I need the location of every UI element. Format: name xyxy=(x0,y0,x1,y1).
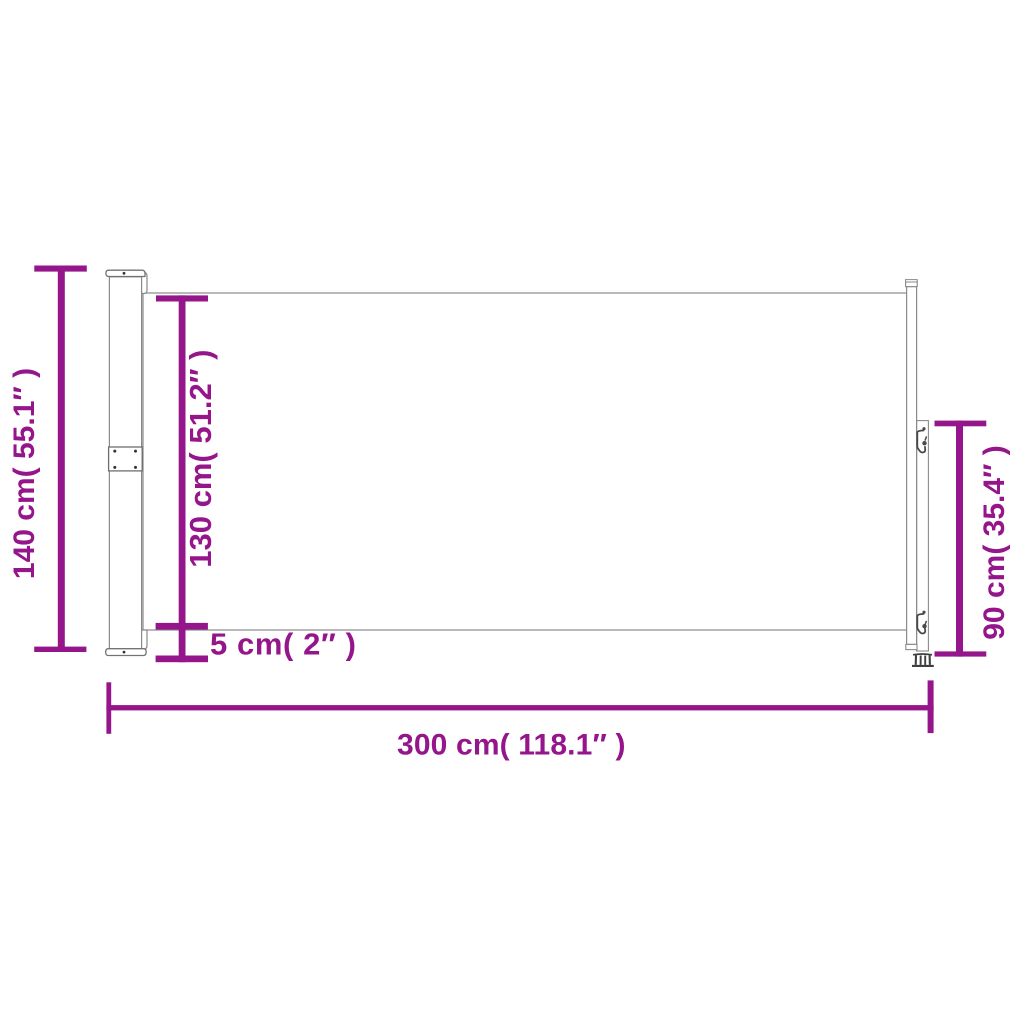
svg-text:130 cm( 51.2″ ): 130 cm( 51.2″ ) xyxy=(183,349,218,567)
svg-text:300 cm( 118.1″ ): 300 cm( 118.1″ ) xyxy=(397,729,626,762)
svg-text:90 cm( 35.4″ ): 90 cm( 35.4″ ) xyxy=(978,445,1011,639)
svg-text:5 cm( 2″ ): 5 cm( 2″ ) xyxy=(210,627,356,662)
svg-text:140 cm( 55.1″ ): 140 cm( 55.1″ ) xyxy=(8,368,41,579)
